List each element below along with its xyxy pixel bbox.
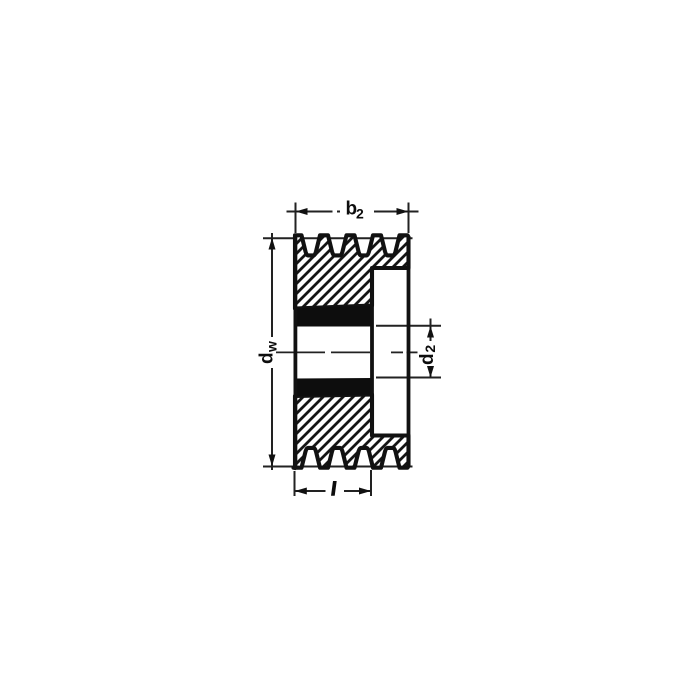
svg-text:2: 2: [422, 345, 438, 353]
svg-text:2: 2: [356, 206, 364, 222]
svg-text:d: d: [257, 352, 278, 364]
svg-text:d: d: [417, 353, 438, 365]
svg-text:w: w: [264, 341, 280, 353]
